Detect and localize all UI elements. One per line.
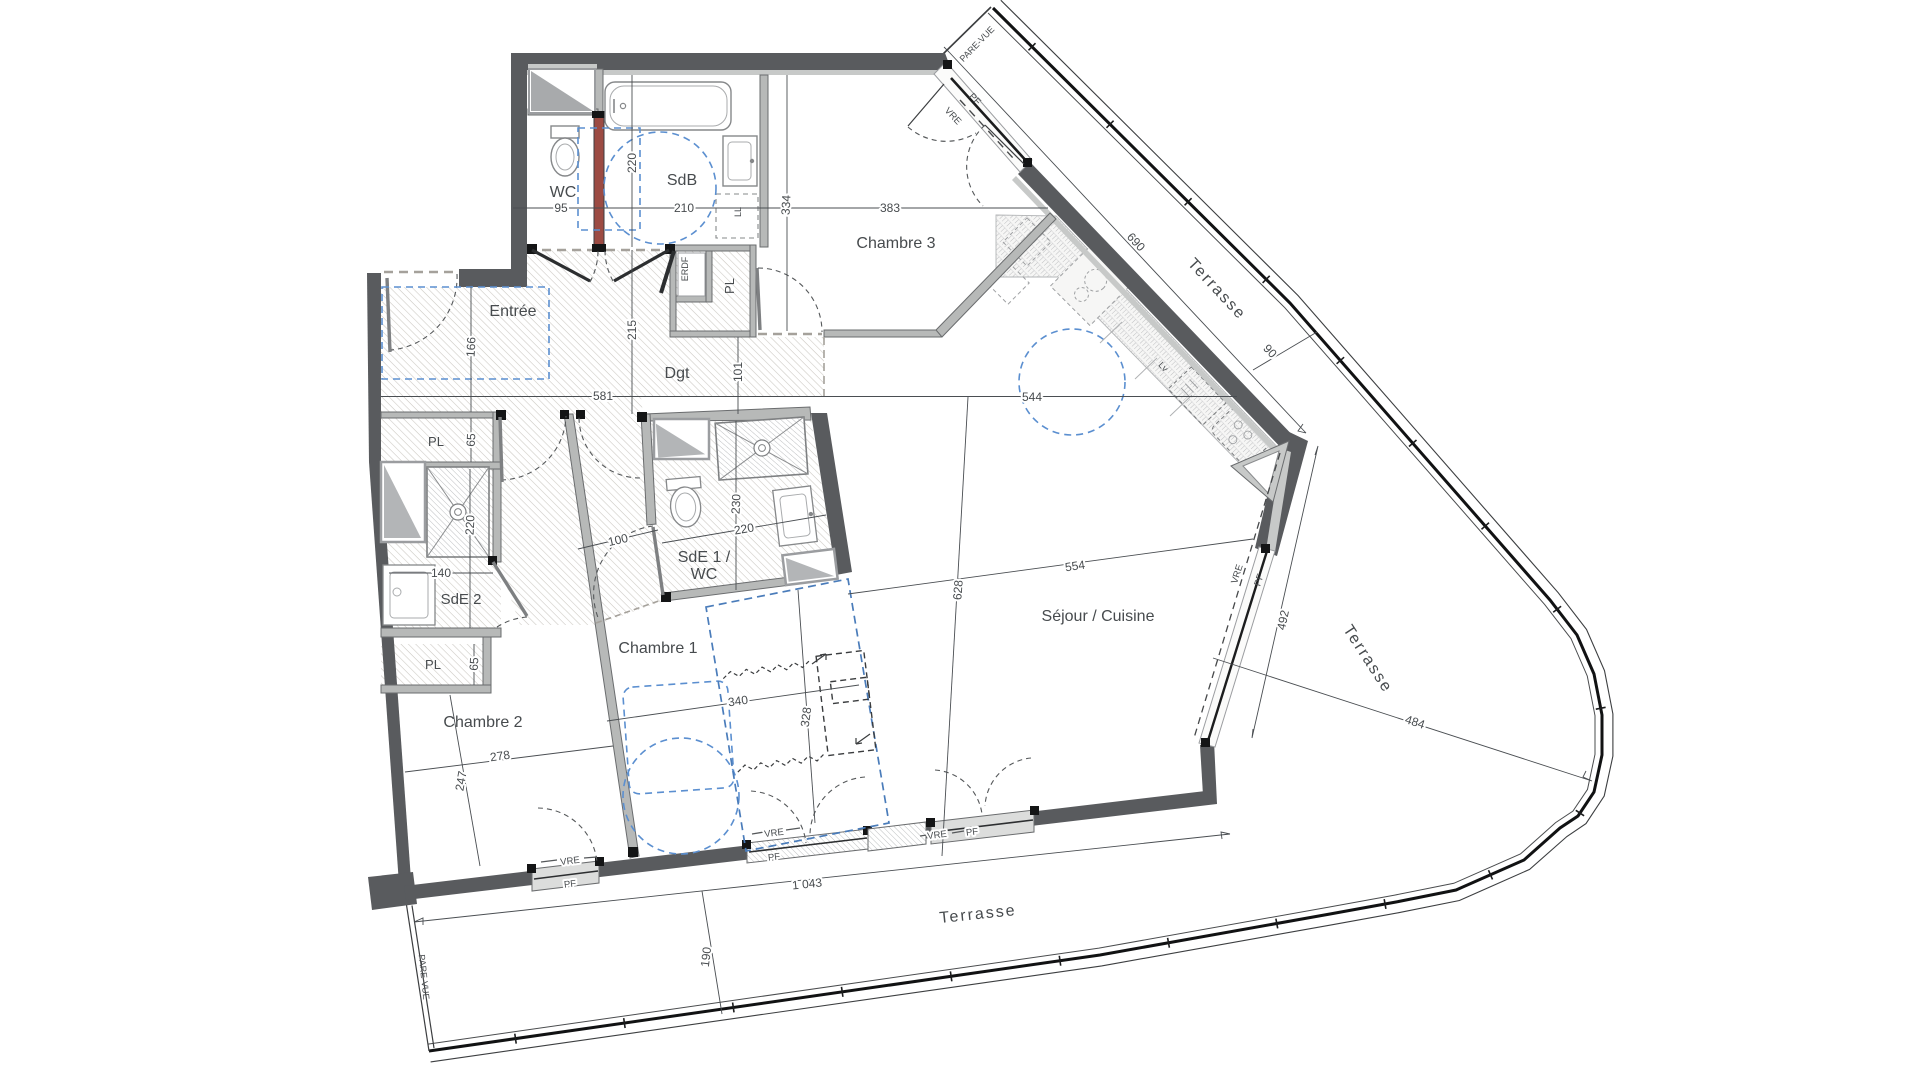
svg-text:SdE 2: SdE 2 [441,591,482,608]
svg-text:Séjour / Cuisine: Séjour / Cuisine [1042,608,1155,625]
svg-text:278: 278 [489,748,511,765]
svg-text:PL: PL [428,434,444,449]
svg-text:WC: WC [550,184,577,201]
svg-text:334: 334 [778,194,793,215]
svg-text:166: 166 [463,336,478,357]
svg-text:65: 65 [464,433,479,447]
svg-text:PF: PF [965,826,979,838]
svg-text:383: 383 [880,201,900,215]
svg-text:554: 554 [1064,558,1086,575]
svg-text:Chambre 2: Chambre 2 [443,714,522,731]
svg-text:LL: LL [733,207,743,217]
svg-text:220: 220 [462,514,477,535]
svg-text:PF: PF [563,878,577,890]
svg-text:210: 210 [674,201,694,215]
svg-text:628: 628 [950,579,965,600]
svg-text:340: 340 [727,693,749,710]
svg-text:101: 101 [731,362,745,382]
svg-text:Entrée: Entrée [489,303,536,320]
svg-text:220: 220 [625,153,639,173]
svg-text:PL: PL [425,657,441,672]
svg-text:328: 328 [798,706,815,728]
svg-text:215: 215 [625,320,639,340]
svg-text:ERDF: ERDF [680,256,690,281]
svg-text:PL: PL [722,278,737,294]
svg-text:SdB: SdB [667,172,697,189]
svg-text:544: 544 [1022,390,1042,404]
svg-text:581: 581 [593,389,613,403]
svg-text:190: 190 [698,946,714,968]
svg-text:PF: PF [767,851,781,863]
svg-text:65: 65 [467,657,482,671]
svg-text:Chambre 3: Chambre 3 [856,235,935,252]
svg-text:SdE 1 /: SdE 1 / [678,549,731,566]
svg-text:Chambre 1: Chambre 1 [618,640,697,657]
svg-text:230: 230 [728,493,743,514]
svg-text:95: 95 [554,201,568,215]
svg-text:WC: WC [691,566,718,583]
svg-text:Dgt: Dgt [665,365,690,382]
svg-text:140: 140 [431,566,451,580]
